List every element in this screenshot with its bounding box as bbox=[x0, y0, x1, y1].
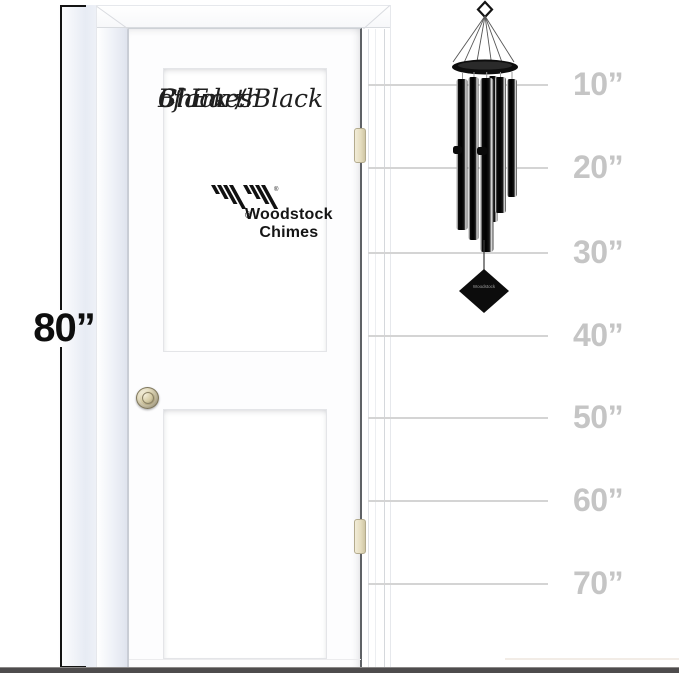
casing-line bbox=[368, 29, 369, 667]
baseboard-shadow bbox=[505, 658, 679, 660]
sail-etched-logo: Woodstock bbox=[473, 284, 496, 289]
chime-tubes bbox=[457, 76, 518, 252]
door-hinge-top bbox=[354, 128, 366, 163]
door-hinge-bottom bbox=[354, 519, 366, 554]
door-height-label: 80” bbox=[28, 308, 100, 348]
dimension-line-upper bbox=[60, 5, 62, 310]
ruler-line-60 bbox=[368, 500, 548, 502]
cord-knot bbox=[477, 147, 487, 155]
door-frame-header bbox=[97, 6, 390, 28]
casing-line bbox=[375, 29, 376, 667]
dimension-tick-top bbox=[60, 5, 86, 7]
chime-top-disc-highlight bbox=[458, 62, 512, 70]
ruler-label-70: 70” bbox=[573, 563, 653, 603]
casing-line bbox=[384, 29, 385, 667]
door-panel-lower bbox=[163, 409, 327, 659]
dimension-line-lower bbox=[60, 347, 62, 668]
ruler-label-10: 10” bbox=[573, 64, 653, 104]
brand-name-text: Woodstock Chimes bbox=[245, 206, 333, 242]
chime-strings bbox=[453, 16, 514, 67]
hanger-ring-icon bbox=[478, 2, 492, 17]
ruler-line-70 bbox=[368, 583, 548, 585]
door-jamb bbox=[97, 6, 128, 667]
door-knob bbox=[136, 387, 159, 409]
product-title-line3: Black / Black bbox=[158, 86, 323, 112]
ruler-label-60: 60” bbox=[573, 480, 653, 520]
cord-knot bbox=[453, 146, 462, 154]
brand-registered-mark: ® bbox=[245, 206, 252, 224]
floor-line bbox=[0, 667, 679, 673]
door-bottom-rail bbox=[129, 659, 361, 660]
wind-chime: Woodstock bbox=[440, 0, 530, 320]
wind-sail bbox=[459, 269, 509, 313]
ruler-line-50 bbox=[368, 417, 548, 419]
ruler-label-50: 50” bbox=[573, 397, 653, 437]
ruler-label-20: 20” bbox=[573, 147, 653, 187]
ruler-label-30: 30” bbox=[573, 232, 653, 272]
size-comparison-scene: 80” Chimes of Earth Black / Black ® Wo bbox=[0, 0, 679, 673]
logo-registered-mark: ® bbox=[274, 186, 279, 193]
ruler-line-40 bbox=[368, 335, 548, 337]
ruler-label-40: 40” bbox=[573, 315, 653, 355]
